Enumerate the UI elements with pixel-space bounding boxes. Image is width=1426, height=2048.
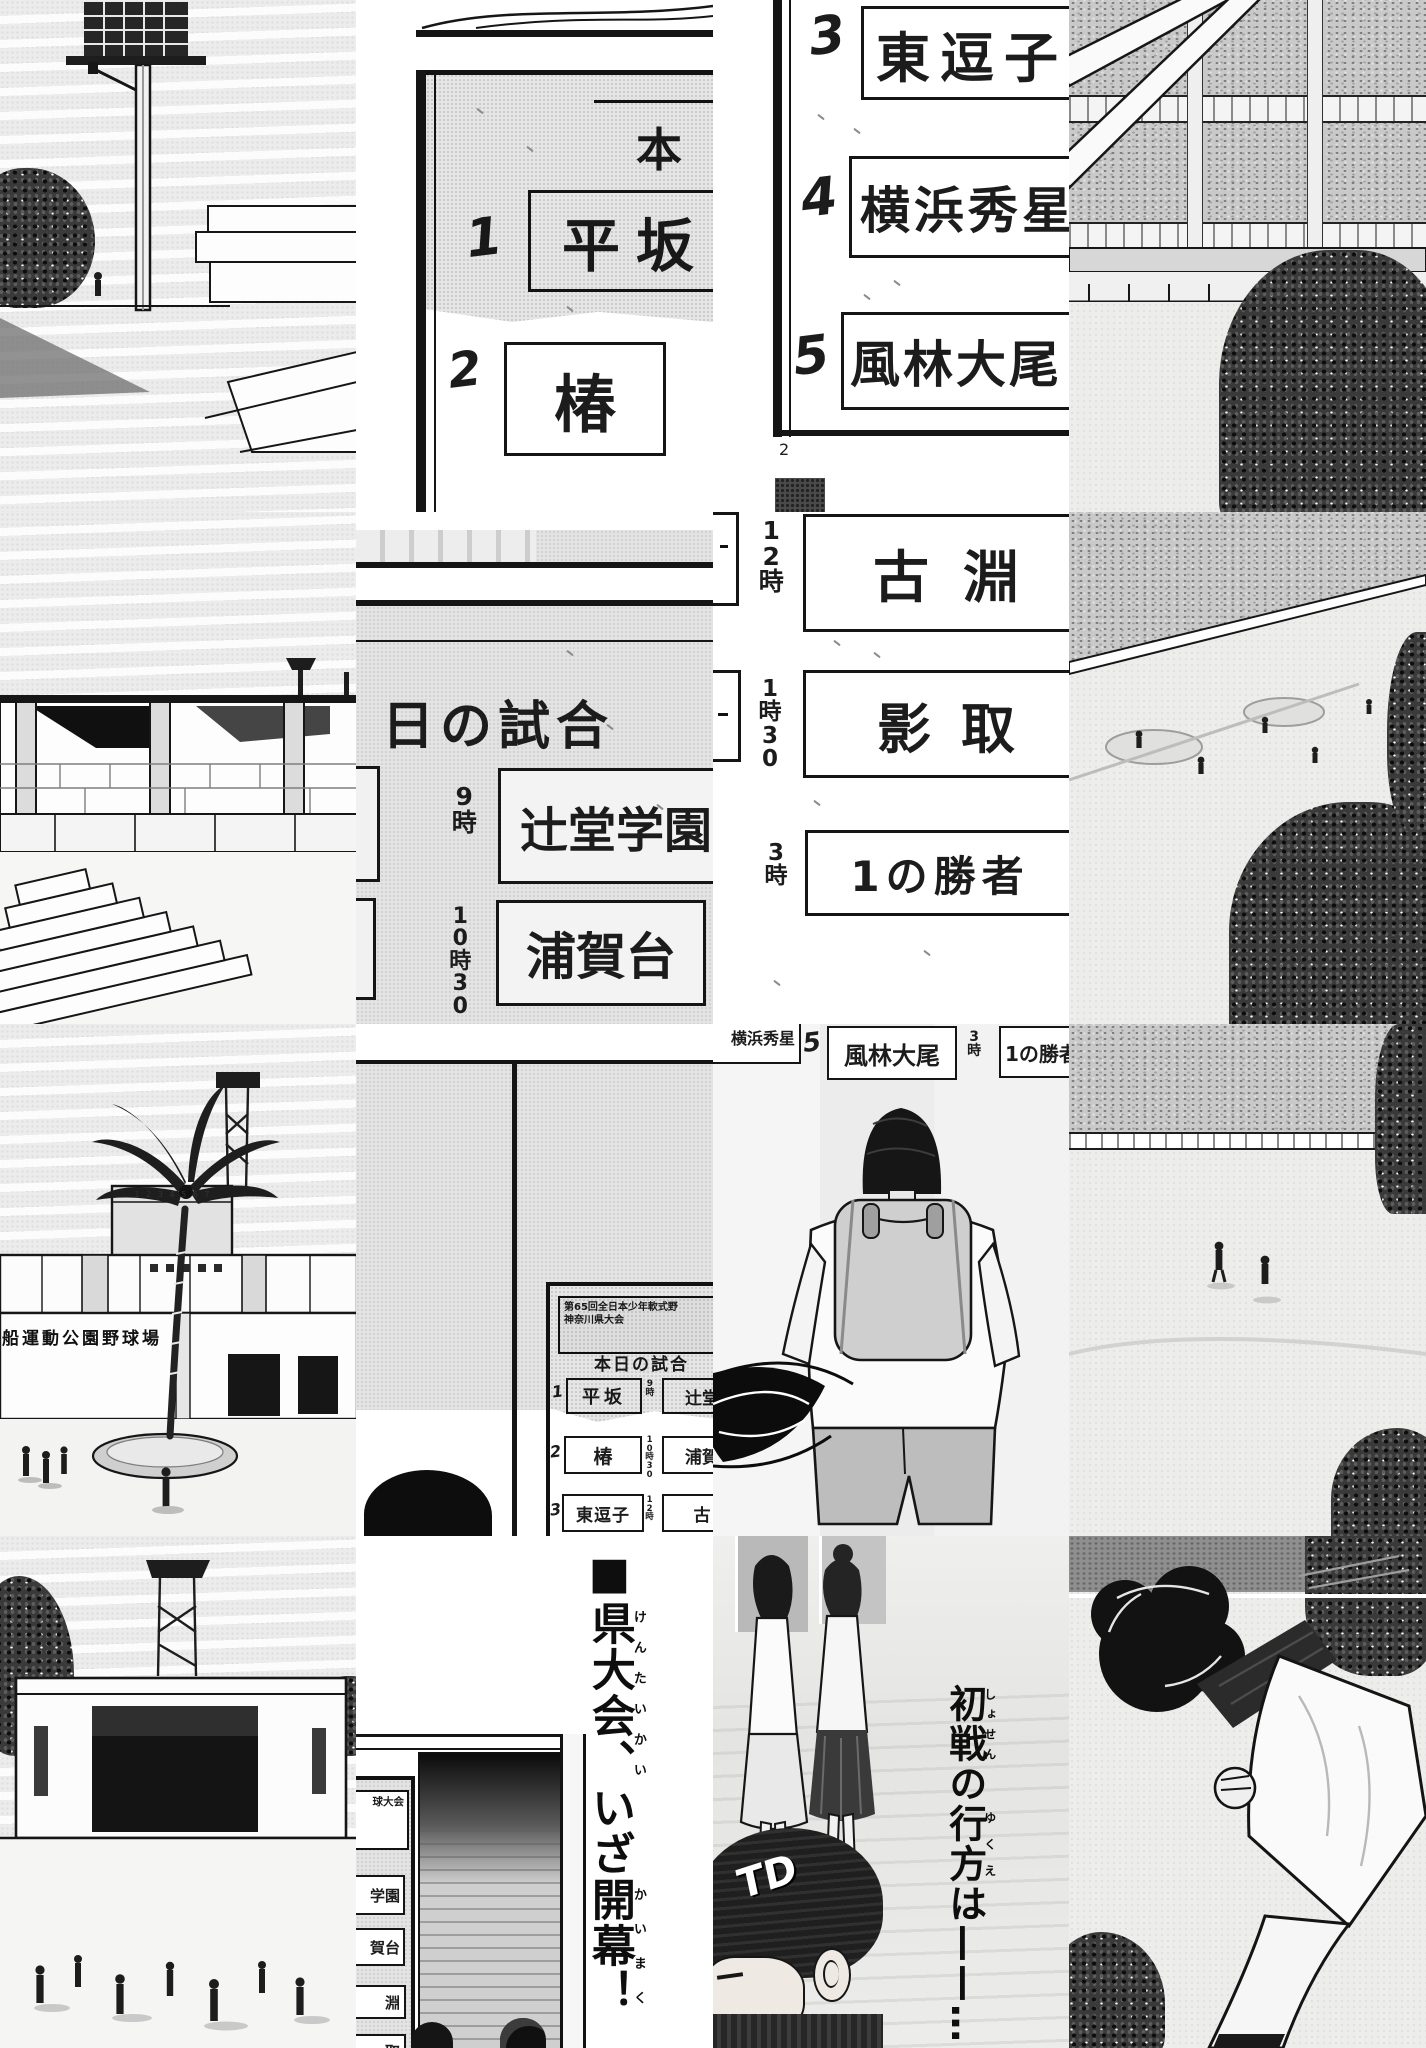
board-row-num: 2 — [549, 1443, 562, 1460]
glyph-fragment — [720, 545, 728, 548]
board-row-time: 10時30 — [644, 1436, 655, 1479]
next-panel-corner — [775, 478, 825, 512]
board-fragment-row: 学園 — [356, 1875, 405, 1915]
boy-ear — [813, 1948, 851, 2002]
headline-seg2: いざ — [584, 1785, 635, 1877]
entry-team-box: 1の勝者 — [805, 830, 1070, 916]
entry-time: 10時30 — [446, 906, 475, 1018]
board-fragment-row: 賀台 — [356, 1928, 405, 1966]
speckle — [863, 294, 871, 301]
clipped-box-fragment — [356, 898, 376, 1000]
board-row-opponent: 古 — [662, 1494, 713, 1532]
entry-4-team-box: 横浜秀星 — [849, 156, 1070, 258]
entry-2-number: 2 — [445, 344, 484, 396]
board-fragment-row: 淵 — [356, 1985, 406, 2019]
headline-seg3: 行方 — [943, 1804, 987, 1884]
headline-ruby3: かいまく — [631, 1877, 646, 2015]
clipped-notice-board: 球大会 学園 賀台 淵 取 — [356, 1776, 415, 2048]
speckle — [773, 980, 781, 987]
tile-r2c2-schedule-sign-times: 日の試合 9時 辻堂学園 10時30 浦賀台 — [356, 512, 713, 1024]
speckle — [893, 280, 901, 287]
stadium-name-sign: 船運動公園野球場 — [2, 1324, 174, 1346]
tile-r3c1-stadium-entrance: 船運動公園野球場 1 2 3 4 5 6 7 — [0, 1024, 357, 1536]
entry-time: 9時 — [448, 784, 481, 835]
tile-r2c1-stadium-exterior — [0, 512, 357, 1024]
entry-team-box: 古淵 — [803, 514, 1070, 632]
tile-r4c4-fielder-closeup — [1069, 1536, 1426, 2048]
glyph-fragment — [718, 713, 728, 716]
sign-inner-line — [356, 640, 713, 642]
speckle — [853, 128, 861, 135]
headline-ruby1: しょせん — [983, 1684, 997, 1764]
headline-seg2: の — [943, 1764, 987, 1804]
boy-with-cap: TD — [713, 1828, 883, 2048]
speckle — [817, 114, 825, 121]
tile-r1c1-floodlight-scene — [0, 0, 357, 512]
entry-3-number: 3 — [806, 8, 848, 64]
tile-r2c4-ballfield-scene — [1069, 512, 1426, 1024]
board-row-team: 東逗子 — [562, 1494, 644, 1532]
pole — [512, 1064, 517, 1536]
floodlight-linework — [0, 0, 357, 512]
manga-collage-page: 本 1 平坂 2 椿 3 東逗子 4 横浜秀星 5 風林大尾 2 — [0, 0, 1426, 2048]
entry-3-team-box: 東逗子 — [861, 6, 1070, 100]
entrance-linework — [0, 1024, 357, 1536]
entry-time: 1時30 — [755, 678, 785, 772]
headline-seg4: は——… — [943, 1884, 987, 2044]
headline-seg1: 初戦 — [943, 1684, 987, 1764]
entry-team-box: 影取 — [803, 670, 1070, 778]
board-shadow-overlay — [550, 1286, 713, 1422]
silhouette-head — [364, 1470, 492, 1536]
tile-r4c3-headline-shosen: 初戦しょせんの行方ゆくえは——… TD — [713, 1536, 1070, 2048]
tile-r3c4-field-players — [1069, 1024, 1426, 1536]
tile-r4c1-gate-plaza — [0, 1536, 357, 2048]
shutter-shadow — [420, 1754, 562, 1884]
panel-left-border — [416, 70, 426, 512]
eave-edge — [356, 562, 713, 568]
sign-shadow-overlay — [426, 70, 713, 322]
scoreboard-innings: 1 2 3 4 5 6 7 — [120, 1190, 226, 1199]
entry-4-number: 4 — [798, 170, 840, 226]
headline-vertical-text: 初戦しょせんの行方ゆくえは——… — [945, 1684, 996, 2048]
speckle — [566, 650, 574, 657]
panel-inner-line — [789, 0, 791, 437]
entry-2-team-box: 椿 — [504, 342, 666, 456]
pillar — [560, 1734, 586, 2048]
page-number: 2 — [779, 440, 789, 459]
tile-r3c2-notice-board: 第65回全日本少年軟式野 神奈川県大会 本日の試合 1 平坂 9時 辻堂 2 椿… — [356, 1024, 713, 1536]
boy-collar-shadow — [713, 2014, 883, 2048]
entry-time: 3時 — [761, 842, 791, 889]
notice-board: 第65回全日本少年軟式野 神奈川県大会 本日の試合 1 平坂 9時 辻堂 2 椿… — [546, 1282, 713, 1536]
board-row-num: 3 — [549, 1501, 562, 1518]
board-row-team: 椿 — [564, 1436, 642, 1474]
speckle — [833, 640, 841, 647]
ceiling-line — [356, 1734, 580, 1737]
sign-title-fragment: 日の試合 — [382, 684, 614, 759]
clipped-box-fragment — [713, 512, 739, 606]
ceiling-line2 — [356, 1748, 580, 1750]
headline-prefix: ■ — [584, 1548, 635, 1601]
speckle — [813, 800, 821, 807]
tile-r4c2-headline-kencup: 球大会 学園 賀台 淵 取 ■県大会、けんたいかいいざ開幕！かいまく — [356, 1536, 713, 2048]
headline-ruby1: けんたいかい — [631, 1601, 646, 1785]
entry-5-team-box: 風林大尾 — [841, 312, 1070, 410]
board-row-time: 12時 — [644, 1496, 655, 1522]
tile-r1c4-grandstand-scene — [1069, 0, 1426, 512]
sign-face: 日の試合 9時 辻堂学園 10時30 浦賀台 — [356, 606, 713, 1024]
board-header-fragment: 球大会 — [356, 1790, 409, 1850]
board-fragment-row: 取 — [356, 2034, 406, 2048]
speckle — [923, 950, 931, 957]
tile-r1c3-schedule-sign-list: 3 東逗子 4 横浜秀星 5 風林大尾 2 — [713, 0, 1070, 512]
entry-team-box: 浦賀台 — [496, 900, 706, 1006]
board-row-opponent: 浦賀 — [662, 1436, 713, 1474]
headline-ruby2: ゆくえ — [983, 1804, 997, 1884]
tile-r3c3-backpack-boy: 横浜秀星 5 風林大尾 3時 1の勝者 — [713, 1024, 1070, 1536]
entry-time: 12時 — [755, 518, 788, 595]
tile-r2c3-schedule-sign-times: 12時 古淵 1時30 影取 3時 1の勝者 — [713, 512, 1070, 1024]
eave-shade — [536, 530, 713, 564]
boy-figure-linework — [713, 1024, 1070, 1536]
headline-vertical-text: ■県大会、けんたいかいいざ開幕！かいまく — [586, 1548, 645, 2048]
previous-panel-border — [416, 30, 713, 37]
gate-linework — [0, 1536, 357, 2048]
sign-panel: 本 1 平坂 2 椿 — [416, 70, 713, 512]
tile-r1c2-schedule-sign-top: 本 1 平坂 2 椿 — [356, 0, 713, 512]
speckle — [873, 652, 881, 659]
headline-seg3: 開幕！ — [584, 1877, 635, 2015]
fielder-linework — [1069, 1536, 1426, 2048]
panel-bottom-border — [773, 430, 1070, 436]
clipped-box-fragment — [713, 670, 741, 762]
shutter-gate — [418, 1752, 564, 2048]
entry-5-number: 5 — [790, 328, 832, 384]
building-linework — [0, 512, 357, 1024]
clipped-box-fragment — [356, 766, 380, 882]
headline-seg1: 県大会、 — [584, 1601, 635, 1785]
panel-left-border — [773, 0, 782, 437]
ear-inner-line — [823, 1960, 839, 1988]
tree-foliage — [1219, 250, 1426, 512]
entry-team-box: 辻堂学園 — [498, 768, 713, 884]
